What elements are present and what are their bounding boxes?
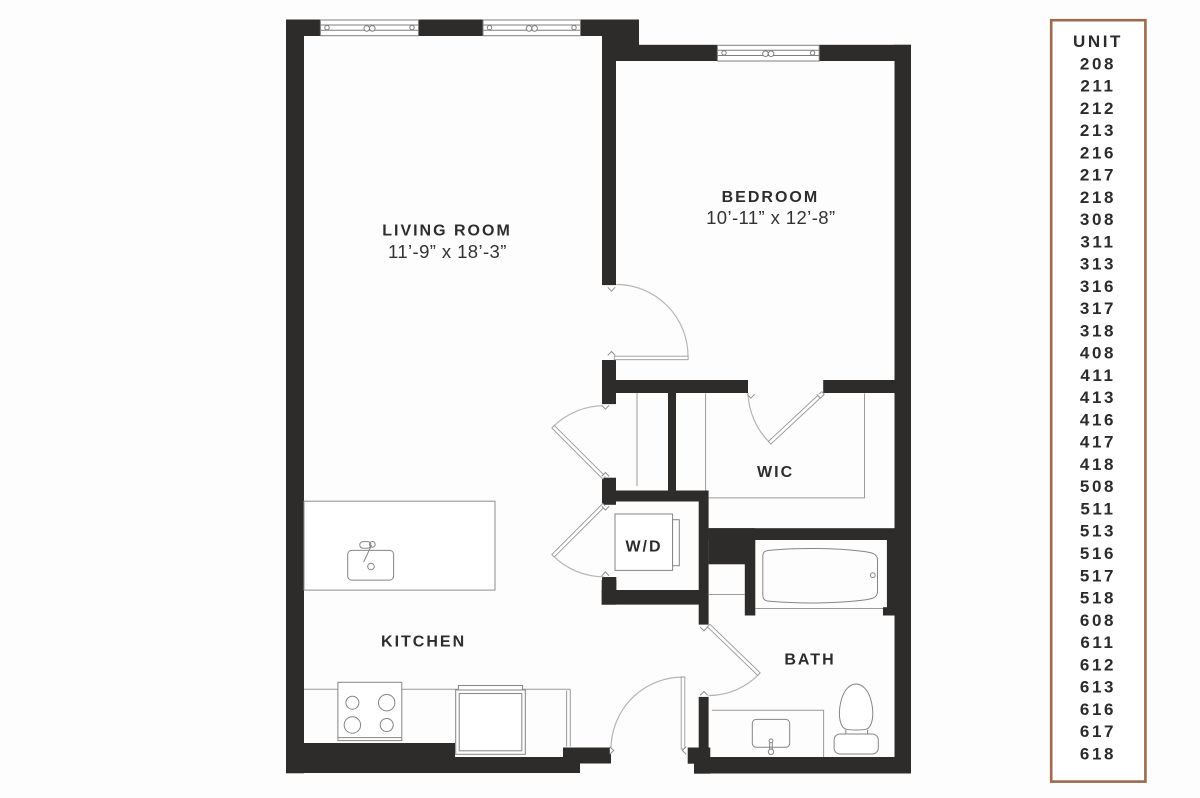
svg-text:612: 612 [1080, 655, 1116, 674]
svg-text:LIVING ROOM: LIVING ROOM [382, 223, 512, 240]
svg-text:511: 511 [1080, 500, 1115, 519]
svg-text:408: 408 [1080, 344, 1116, 363]
svg-text:KITCHEN: KITCHEN [381, 634, 466, 651]
svg-text:418: 418 [1080, 455, 1116, 474]
svg-text:211: 211 [1080, 77, 1115, 96]
svg-text:618: 618 [1080, 744, 1116, 763]
svg-text:517: 517 [1080, 566, 1116, 585]
svg-text:212: 212 [1080, 99, 1116, 118]
svg-text:BEDROOM: BEDROOM [722, 189, 820, 206]
svg-text:413: 413 [1080, 388, 1116, 407]
svg-text:416: 416 [1080, 411, 1116, 430]
svg-text:308: 308 [1080, 210, 1116, 229]
svg-text:516: 516 [1080, 544, 1116, 563]
svg-text:318: 318 [1080, 321, 1116, 340]
svg-text:WIC: WIC [757, 464, 794, 481]
svg-text:417: 417 [1080, 433, 1116, 452]
svg-text:10’-11” x 12’-8”: 10’-11” x 12’-8” [706, 207, 835, 228]
svg-text:513: 513 [1080, 522, 1116, 541]
svg-text:313: 313 [1080, 255, 1116, 274]
svg-text:W/D: W/D [625, 538, 662, 555]
svg-text:11’-9” x 18’-3”: 11’-9” x 18’-3” [388, 241, 507, 262]
svg-text:608: 608 [1080, 611, 1116, 630]
svg-text:613: 613 [1080, 678, 1116, 697]
svg-text:616: 616 [1080, 700, 1116, 719]
svg-text:311: 311 [1080, 232, 1115, 251]
svg-text:UNIT: UNIT [1073, 32, 1123, 51]
svg-text:208: 208 [1080, 54, 1116, 73]
svg-text:218: 218 [1080, 188, 1116, 207]
svg-text:611: 611 [1080, 633, 1115, 652]
svg-text:316: 316 [1080, 277, 1116, 296]
svg-text:216: 216 [1080, 143, 1116, 162]
svg-text:411: 411 [1080, 366, 1115, 385]
svg-text:617: 617 [1080, 722, 1116, 741]
svg-text:217: 217 [1080, 166, 1116, 185]
svg-text:BATH: BATH [784, 652, 835, 669]
svg-text:508: 508 [1080, 477, 1116, 496]
svg-text:213: 213 [1080, 121, 1116, 140]
svg-text:518: 518 [1080, 589, 1116, 608]
svg-text:317: 317 [1080, 299, 1116, 318]
